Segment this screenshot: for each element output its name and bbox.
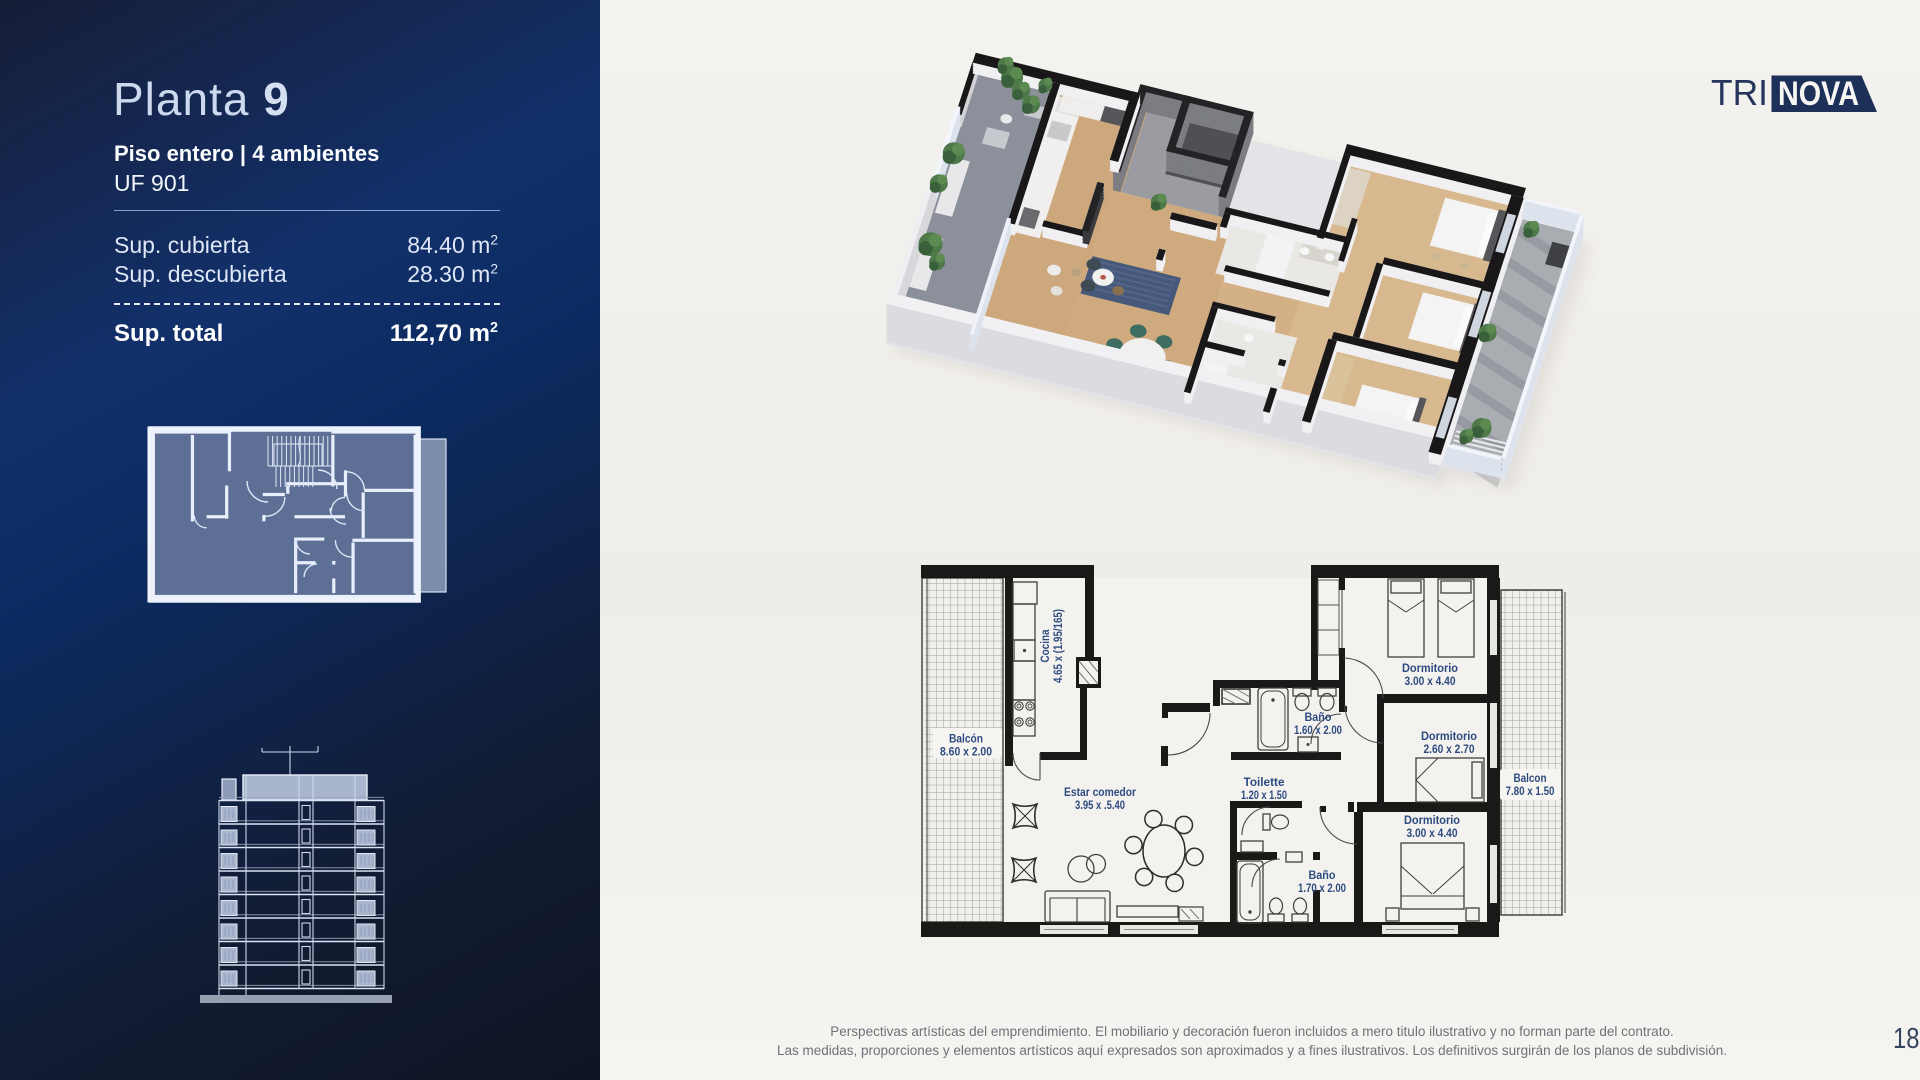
svg-text:NOVA: NOVA — [1778, 75, 1859, 113]
svg-text:2.60 x 2.70: 2.60 x 2.70 — [1424, 744, 1475, 756]
svg-text:Toilette: Toilette — [1244, 777, 1285, 789]
svg-text:Estar comedor: Estar comedor — [1064, 787, 1136, 799]
svg-text:Dormitorio: Dormitorio — [1404, 815, 1460, 827]
svg-text:3.95 x .5.40: 3.95 x .5.40 — [1075, 800, 1125, 812]
svg-text:3.00 x 4.40: 3.00 x 4.40 — [1405, 676, 1456, 688]
svg-text:1.20 x 1.50: 1.20 x 1.50 — [1241, 790, 1287, 802]
svg-text:Balcon: Balcon — [1514, 773, 1547, 785]
svg-text:Dormitorio: Dormitorio — [1421, 731, 1477, 743]
svg-text:7.80 x 1.50: 7.80 x 1.50 — [1506, 786, 1555, 798]
svg-text:Cocina: Cocina — [1040, 629, 1052, 663]
svg-text:Dormitorio: Dormitorio — [1402, 663, 1458, 675]
svg-text:Baño: Baño — [1305, 712, 1332, 724]
svg-text:3.00 x 4.40: 3.00 x 4.40 — [1407, 828, 1458, 840]
svg-text:1.60 x 2.00: 1.60 x 2.00 — [1294, 725, 1342, 737]
svg-text:8.60 x 2.00: 8.60 x 2.00 — [940, 747, 992, 759]
svg-text:1.70 x 2.00: 1.70 x 2.00 — [1298, 883, 1346, 895]
svg-text:Balcón: Balcón — [949, 734, 983, 746]
svg-text:Baño: Baño — [1309, 870, 1336, 882]
svg-text:4.65 x (1.95/165): 4.65 x (1.95/165) — [1053, 609, 1065, 683]
svg-text:TRI: TRI — [1711, 72, 1768, 113]
